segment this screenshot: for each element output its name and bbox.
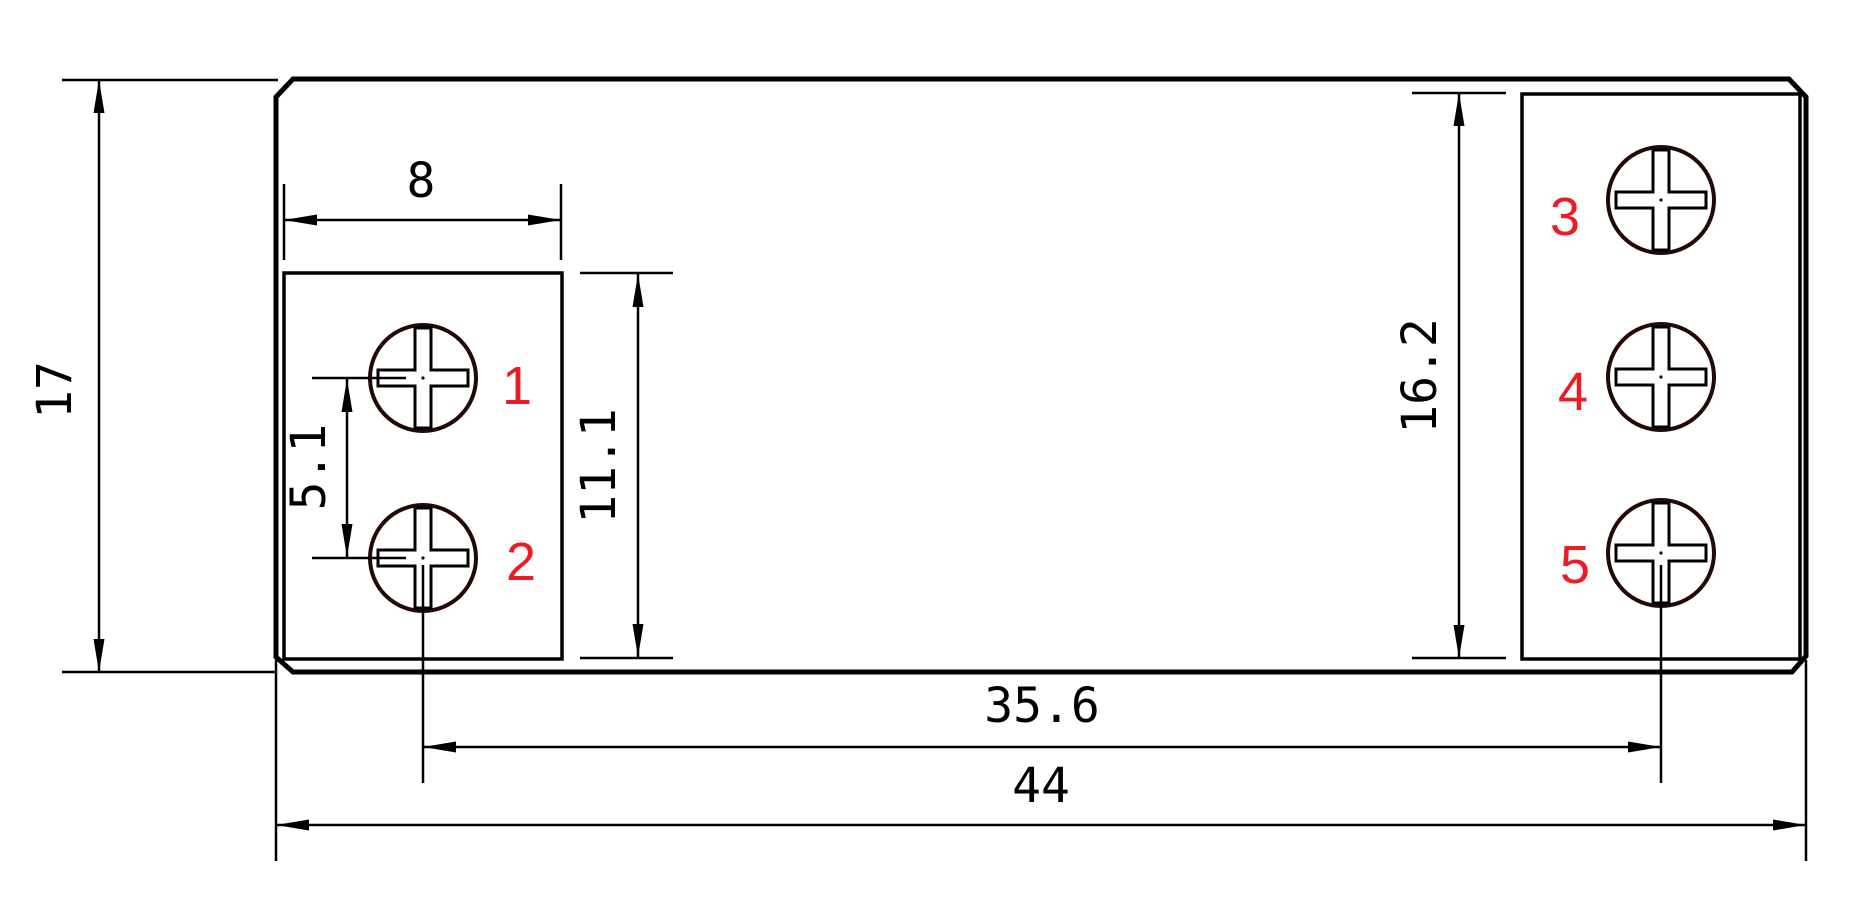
arrowhead-down bbox=[94, 639, 105, 672]
terminal-label-5: 5 bbox=[1560, 535, 1590, 595]
terminal-label-1: 1 bbox=[502, 356, 532, 416]
screw-center-mark bbox=[421, 556, 424, 559]
dimension-text-16-2: 16.2 bbox=[1392, 318, 1448, 434]
dimension-text-11-1: 11.1 bbox=[571, 408, 627, 524]
screw-terminal-4 bbox=[1608, 324, 1714, 430]
arrowhead-left bbox=[423, 742, 456, 753]
dimension-text-44: 44 bbox=[1012, 758, 1070, 814]
terminal-label-3: 3 bbox=[1550, 187, 1580, 247]
screw-terminal-3 bbox=[1608, 147, 1714, 253]
dimension-text-35-6: 35.6 bbox=[984, 678, 1100, 734]
screw-center-mark bbox=[1659, 198, 1662, 201]
dimension-overall-height: 17 bbox=[27, 80, 278, 672]
arrowhead-right bbox=[1773, 820, 1806, 831]
arrowhead-right bbox=[1628, 742, 1661, 753]
dimension-text-5-1: 5.1 bbox=[281, 424, 337, 511]
terminal-label-2: 2 bbox=[506, 532, 536, 592]
arrowhead-left bbox=[276, 820, 309, 831]
technical-drawing: 17 8 5.1 11.1 16.2 bbox=[0, 0, 1866, 901]
screw-center-mark bbox=[421, 376, 424, 379]
dimension-text-8: 8 bbox=[407, 153, 436, 209]
dimension-text-17: 17 bbox=[27, 361, 83, 419]
technical-drawing-canvas: 17 8 5.1 11.1 16.2 bbox=[0, 0, 1866, 901]
screw-center-mark bbox=[1659, 551, 1662, 554]
terminal-label-4: 4 bbox=[1558, 362, 1588, 422]
screw-center-mark bbox=[1659, 375, 1662, 378]
arrowhead-up bbox=[94, 80, 105, 113]
